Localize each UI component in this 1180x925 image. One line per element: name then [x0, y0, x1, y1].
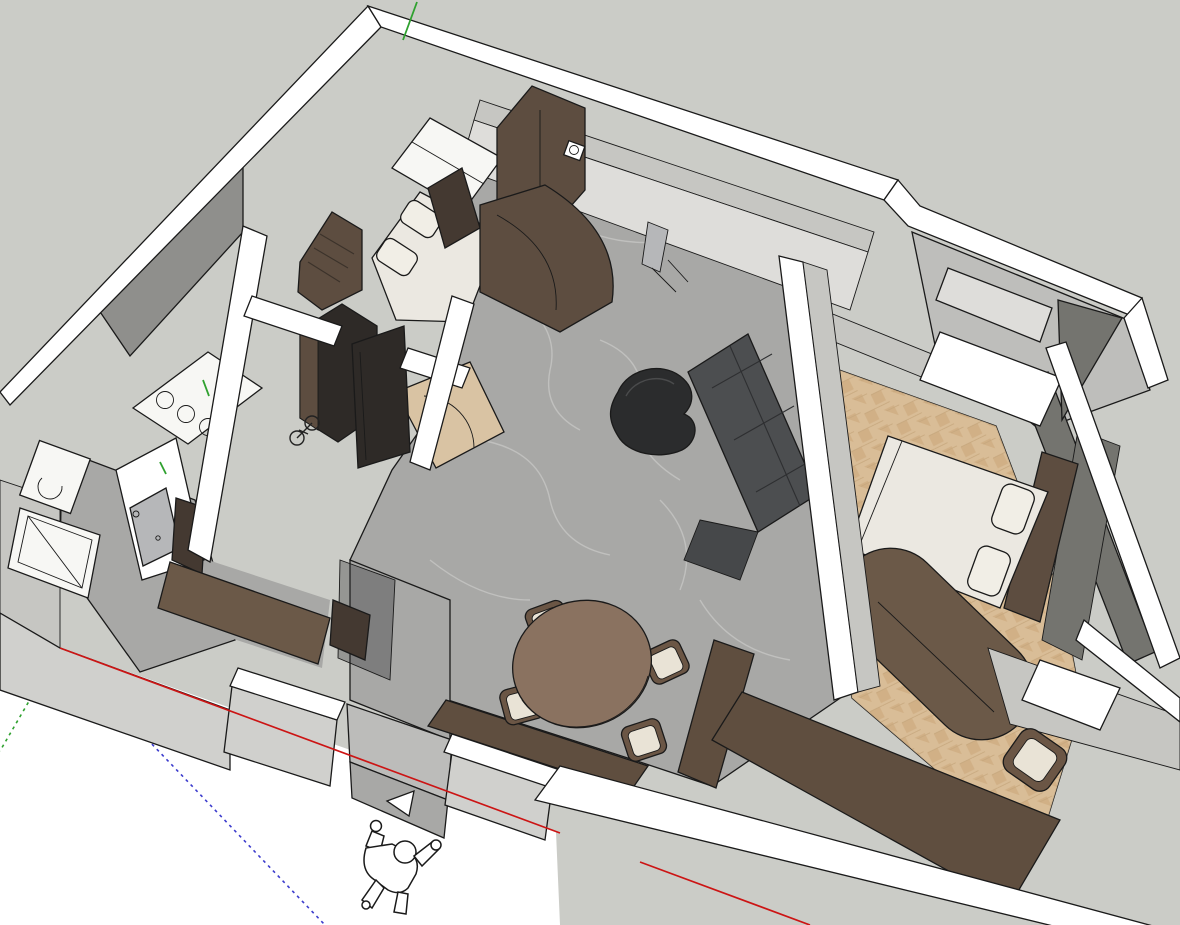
open-entry-door[interactable]	[352, 326, 410, 468]
figure-right-leg	[394, 892, 408, 914]
model-canvas[interactable]	[0, 0, 1180, 925]
figure-left-hand	[371, 821, 382, 832]
figure-right-hand	[431, 840, 441, 850]
scale-figure[interactable]	[362, 821, 441, 915]
figure-left-foot	[362, 901, 370, 909]
figure-head	[394, 841, 416, 863]
sketchup-3d-viewport[interactable]	[0, 0, 1180, 925]
